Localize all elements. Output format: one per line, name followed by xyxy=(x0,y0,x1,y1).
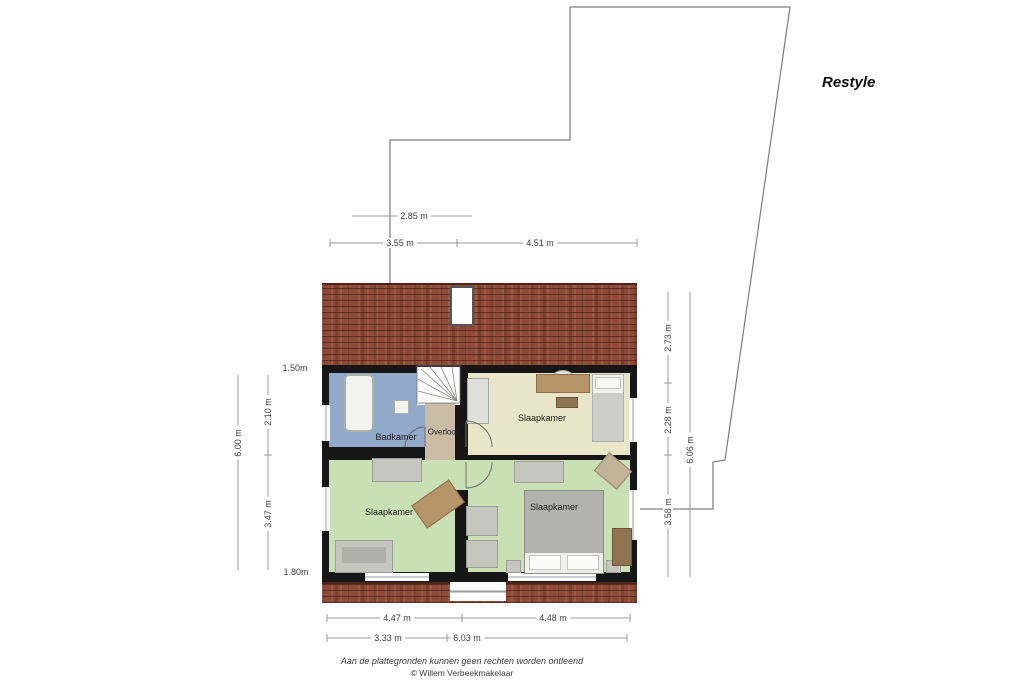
window-bottom-2 xyxy=(508,573,596,581)
dresser xyxy=(372,458,422,482)
dim-bottom-row2-left: 3.33 m xyxy=(371,633,405,643)
label-slaapkamer-top-right: Slaapkamer xyxy=(518,413,566,423)
dim-top-setback: 2.85 m xyxy=(397,211,431,221)
dim-left-upper: 2.10 m xyxy=(263,395,273,429)
rug xyxy=(556,397,578,408)
sofa-bed xyxy=(335,540,393,573)
cabinet-1 xyxy=(466,506,498,536)
dim-top-right: 4.51 m xyxy=(523,238,557,248)
nightstand-left xyxy=(506,560,521,573)
dim-top-left: 3.55 m xyxy=(383,238,417,248)
label-slaapkamer-bottom-left: Slaapkamer xyxy=(365,507,413,517)
label-overloop: Overloop xyxy=(428,428,460,437)
bathtub xyxy=(344,374,374,432)
sink xyxy=(394,400,409,414)
window-right-1 xyxy=(629,398,637,442)
window-left-1 xyxy=(322,405,330,441)
bed-pillow xyxy=(595,377,621,389)
dim-left-headroom-bottom: 1.80m xyxy=(280,567,311,577)
pillow-right xyxy=(567,555,599,570)
dim-bottom-row1-left: 4.47 m xyxy=(380,613,414,623)
label-slaapkamer-bottom-right: Slaapkamer xyxy=(530,502,578,512)
dormer-window-bottom xyxy=(450,582,506,601)
roof-top-band xyxy=(322,283,637,367)
dim-bottom-row1-right: 4.48 m xyxy=(536,613,570,623)
dim-right-upper: 2.28 m xyxy=(663,403,673,437)
dim-right-total: 6.06 m xyxy=(685,433,695,467)
window-bottom-1 xyxy=(365,573,429,581)
sofa-seat xyxy=(342,547,386,563)
dim-right-lower: 3.58 m xyxy=(663,495,673,529)
roof-skylight xyxy=(450,286,474,326)
cabinet-right-wall xyxy=(612,528,632,566)
label-badkamer: Badkamer xyxy=(375,432,416,442)
dim-left-total: 6.00 m xyxy=(233,426,243,460)
door-opening-bottom-right xyxy=(455,460,468,490)
dim-bottom-row2-right: 6.03 m xyxy=(450,633,484,643)
sideboard xyxy=(514,461,564,483)
bed-blanket xyxy=(593,393,623,441)
pillow-left xyxy=(529,555,561,570)
cabinet-2 xyxy=(466,540,498,568)
dim-right-roof: 2.73 m xyxy=(663,321,673,355)
wardrobe xyxy=(467,378,489,424)
footer-disclaimer: Aan de plattegronden kunnen geen rechten… xyxy=(232,656,692,666)
desk xyxy=(536,374,590,393)
staircase xyxy=(417,367,460,405)
window-left-2 xyxy=(322,487,330,531)
single-bed xyxy=(592,374,624,442)
footer-copyright: © Willem Verbeekmakelaar xyxy=(232,668,692,678)
dim-left-headroom-top: 1.50m xyxy=(279,363,310,373)
footer: Aan de plattegronden kunnen geen rechten… xyxy=(232,656,692,678)
floorplan-page: { "title": "Restyle", "floorplan": { "ro… xyxy=(0,0,1024,683)
dim-left-lower: 3.47 m xyxy=(263,497,273,531)
plan-title: Restyle xyxy=(822,74,875,91)
